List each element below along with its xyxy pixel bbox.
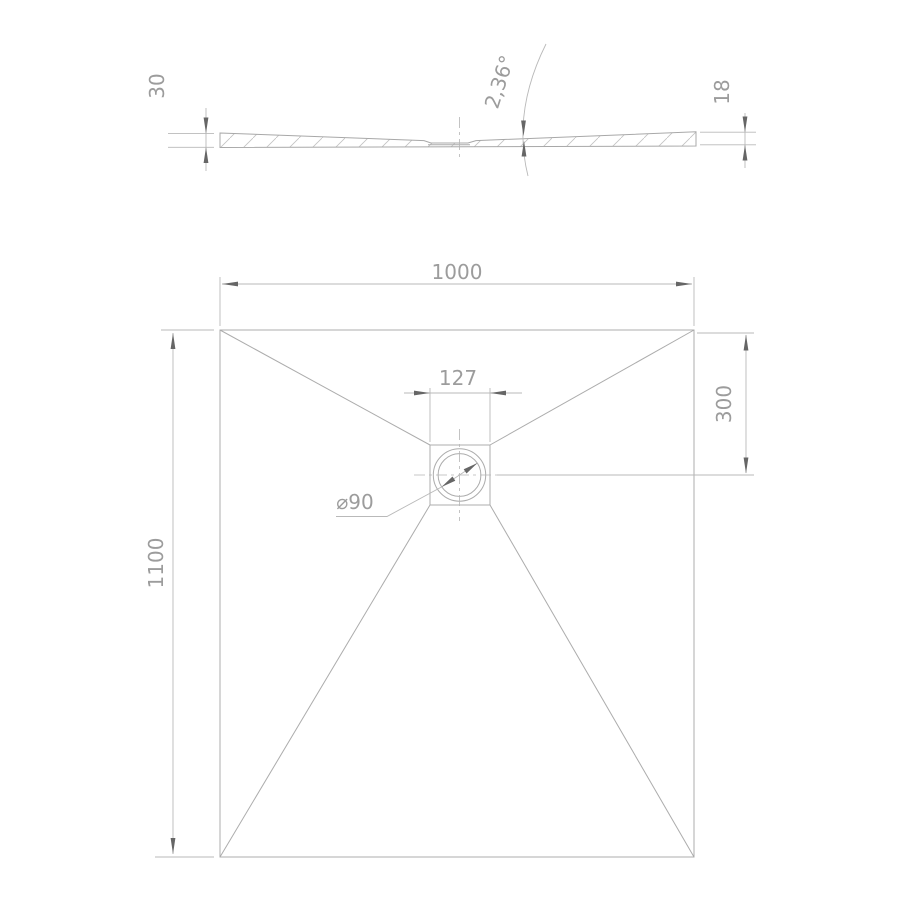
dim-arrow-up — [204, 147, 209, 163]
technical-drawing-canvas: 30 18 2,36° — [0, 0, 900, 899]
dimension-drain-plate-127: 127 — [404, 366, 522, 442]
dim-arrow-left — [490, 391, 506, 396]
slope-fold-line-bottom-left — [220, 505, 430, 857]
slope-fold-line-top-left — [220, 330, 430, 445]
plan-outline — [220, 330, 694, 857]
dimension-slope-angle: 2,36° — [480, 44, 546, 176]
dim-arrow-right — [676, 282, 692, 287]
section-view: 30 18 2,36° — [145, 44, 756, 176]
drawing-page: 30 18 2,36° — [0, 0, 900, 899]
dim-arrow-up — [171, 333, 176, 349]
dim-arrow-down — [743, 117, 748, 133]
dim-arrow-sw — [442, 477, 456, 488]
dimension-drain-diameter-90: ⌀90 — [336, 463, 478, 517]
dim-label-right-height: 18 — [710, 79, 734, 104]
dim-arrow-down — [204, 118, 209, 134]
dimension-depth-1100: 1100 — [144, 330, 214, 857]
dim-arrow-down — [171, 838, 176, 854]
dimension-section-right-height: 18 — [700, 79, 756, 168]
dim-arrow-right — [414, 391, 430, 396]
dim-arrow-up — [744, 335, 749, 351]
dim-label-depth: 1100 — [144, 538, 168, 589]
dim-label-slope-angle: 2,36° — [480, 52, 520, 111]
dimension-width-1000: 1000 — [220, 260, 694, 326]
plan-view: 1000 1100 127 300 — [144, 260, 754, 857]
dimension-drain-offset-300: 300 — [497, 333, 754, 475]
dim-label-drain-offset: 300 — [712, 385, 736, 423]
dim-arrow-down — [744, 458, 749, 474]
dim-arrow-ne — [464, 463, 478, 474]
dim-label-drain-diameter: ⌀90 — [336, 490, 374, 514]
dim-arrow-up — [743, 145, 748, 161]
slope-fold-line-top-right — [490, 330, 694, 445]
dim-label-left-height: 30 — [145, 73, 169, 98]
dim-arrow-left — [222, 282, 238, 287]
dimension-section-left-height: 30 — [145, 73, 214, 171]
dim-label-drain-plate: 127 — [439, 366, 477, 390]
slope-fold-line-bottom-right — [490, 505, 694, 857]
dim-label-width: 1000 — [432, 260, 483, 284]
dim-arrow-down — [521, 121, 526, 137]
